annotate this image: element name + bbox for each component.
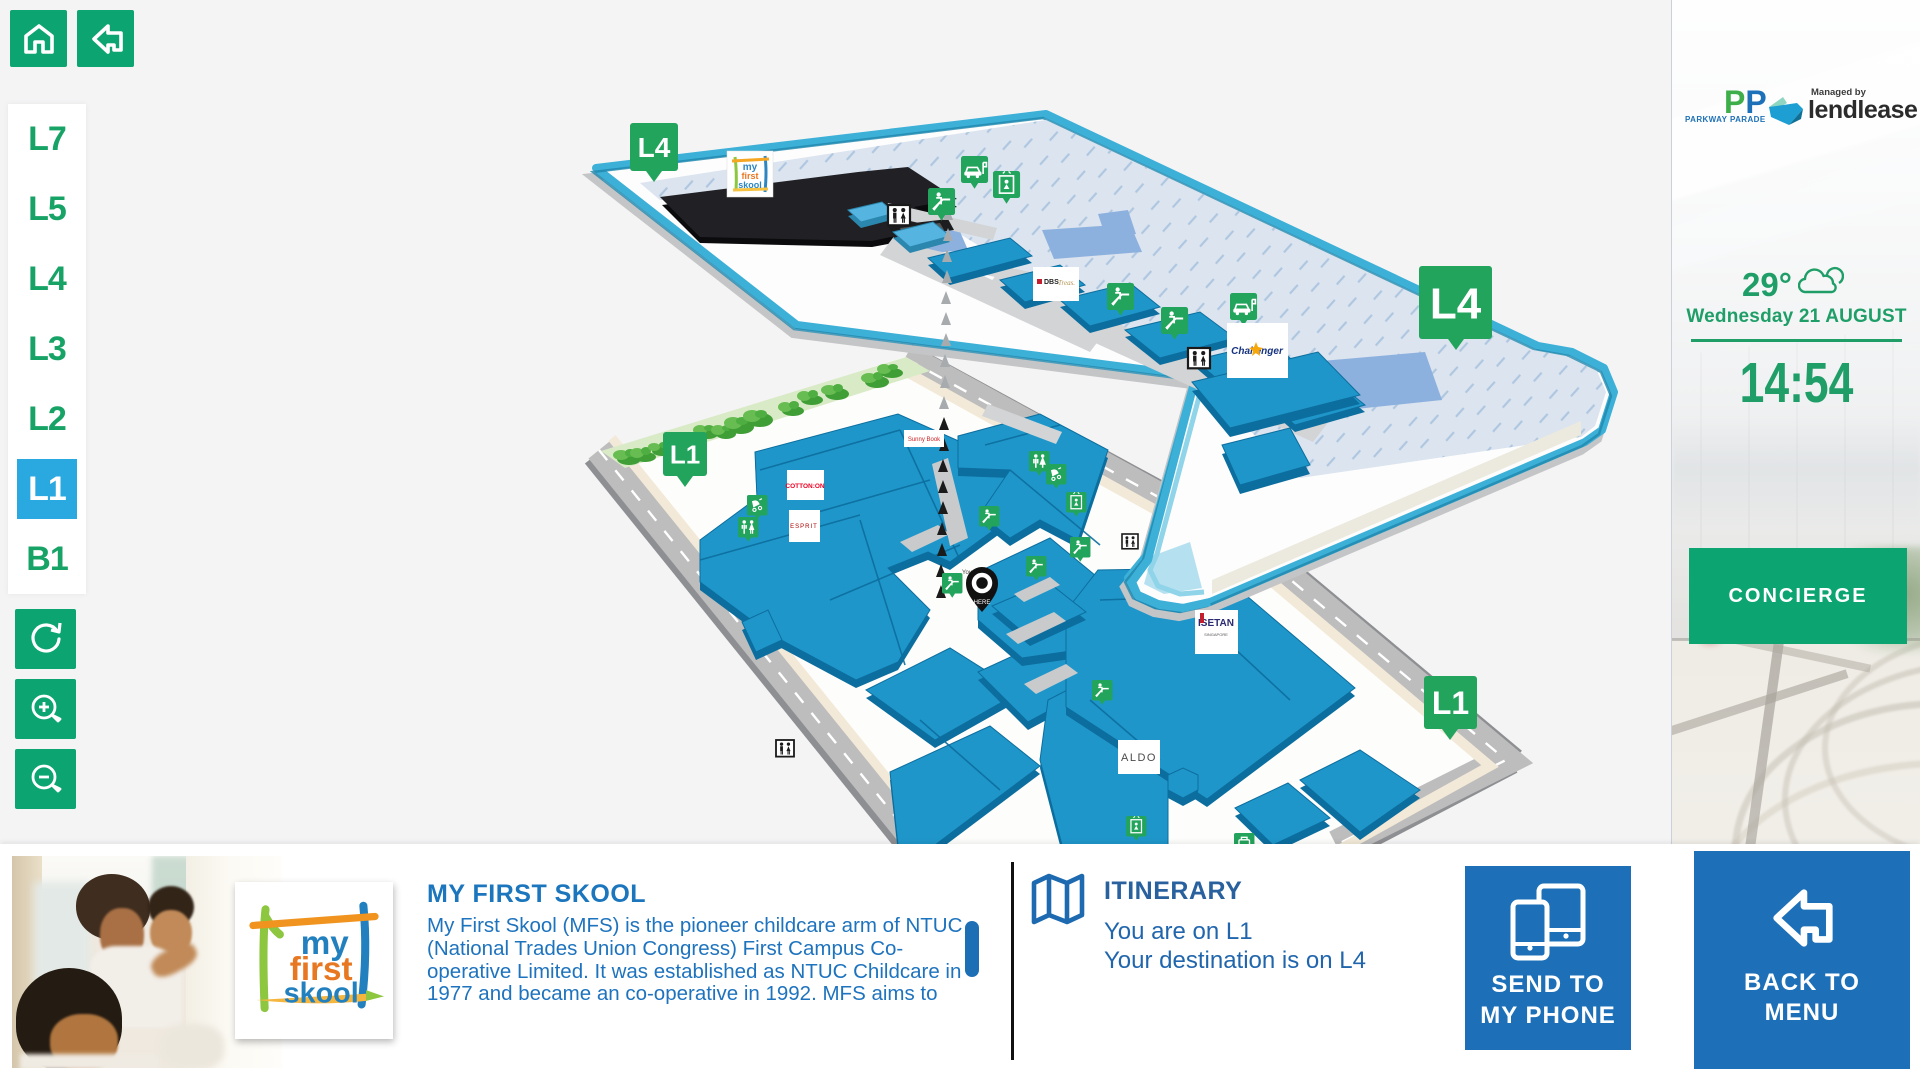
- svg-text:skool: skool: [284, 978, 359, 1010]
- svg-text:COTTON:ON: COTTON:ON: [785, 483, 825, 490]
- svg-text:L1: L1: [670, 439, 700, 469]
- svg-text:HERE: HERE: [974, 600, 991, 606]
- svg-text:ESPRIT: ESPRIT: [790, 524, 818, 530]
- svg-text:ALDO: ALDO: [1121, 752, 1157, 764]
- svg-text:DBS: DBS: [1044, 279, 1059, 286]
- svg-text:L4: L4: [638, 132, 671, 163]
- svg-text:skool: skool: [738, 180, 762, 190]
- svg-text:L4: L4: [1430, 279, 1482, 328]
- svg-text:L1: L1: [1432, 685, 1469, 721]
- svg-text:Treas.: Treas.: [1058, 279, 1075, 287]
- svg-text:Sunny Book: Sunny Book: [908, 437, 941, 443]
- svg-text:SINGAPORE: SINGAPORE: [1204, 632, 1228, 637]
